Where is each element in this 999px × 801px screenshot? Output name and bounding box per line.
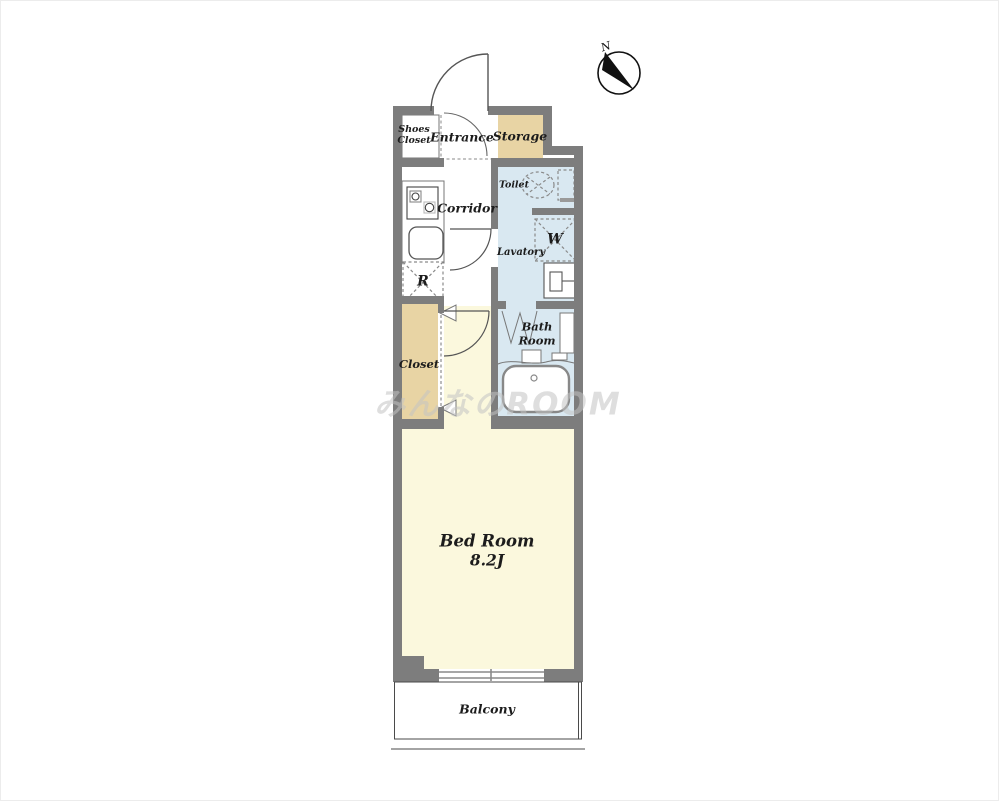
bedroom-window xyxy=(439,669,544,682)
storage-floor xyxy=(498,115,543,158)
balcony-outline xyxy=(391,682,585,749)
entrance-door-arc xyxy=(431,54,488,111)
north-arrow-icon xyxy=(602,52,634,90)
bedroom-floor-main xyxy=(402,429,574,669)
vanity-sink-icon xyxy=(544,263,576,298)
floor-plan-canvas: N Shoes Closet Entrance Storage Corridor… xyxy=(0,0,999,801)
kitchen-sink-icon xyxy=(409,227,443,259)
closet-floor xyxy=(398,303,438,419)
compass: N xyxy=(598,39,640,94)
stove-icon xyxy=(407,187,438,219)
bathtub-icon xyxy=(503,366,569,412)
compass-north-label: N xyxy=(598,39,612,55)
floor-plan-drawing: N xyxy=(1,1,999,801)
shoes-closet-box xyxy=(402,115,439,158)
